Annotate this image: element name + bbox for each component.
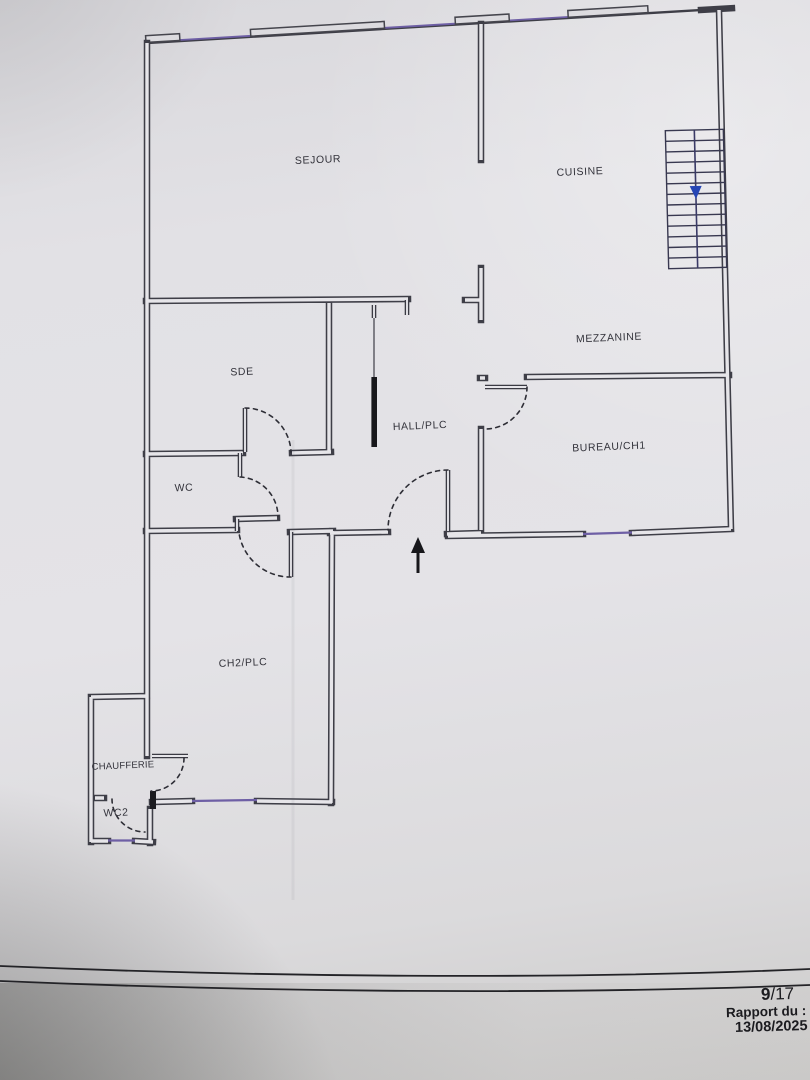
room-label-sejour: SEJOUR — [295, 153, 342, 167]
floorplan-drawing — [0, 0, 810, 1080]
room-label-wc: WC — [174, 482, 193, 495]
stair-direction-arrow-icon — [690, 186, 702, 199]
room-label-ch2: CH2/PLC — [218, 656, 267, 670]
page-fold-line — [0, 966, 810, 976]
room-label-wc2: WC2 — [103, 806, 129, 819]
page-fold-line — [0, 981, 810, 991]
report-date: 13/08/2025 — [735, 1018, 808, 1036]
room-label-hall: HALL/PLC — [393, 419, 448, 433]
page-indicator: 9/17 — [761, 984, 795, 1005]
window-icon — [146, 34, 180, 43]
room-label-cuisine: CUISINE — [556, 165, 603, 179]
room-label-sde: SDE — [230, 366, 254, 379]
sliding-door-icon — [371, 377, 377, 447]
window-glass-line — [108, 533, 632, 841]
window-icon — [568, 6, 648, 18]
scanned-floorplan-page: SEJOUR CUISINE MEZZANINE SDE HALL/PLC BU… — [0, 0, 810, 1080]
top-wall-with-windows — [146, 1, 732, 43]
page-total: /17 — [770, 984, 794, 1004]
entrance-arrow-icon — [411, 537, 425, 573]
door-leaves — [152, 300, 527, 809]
staircase — [665, 129, 726, 268]
